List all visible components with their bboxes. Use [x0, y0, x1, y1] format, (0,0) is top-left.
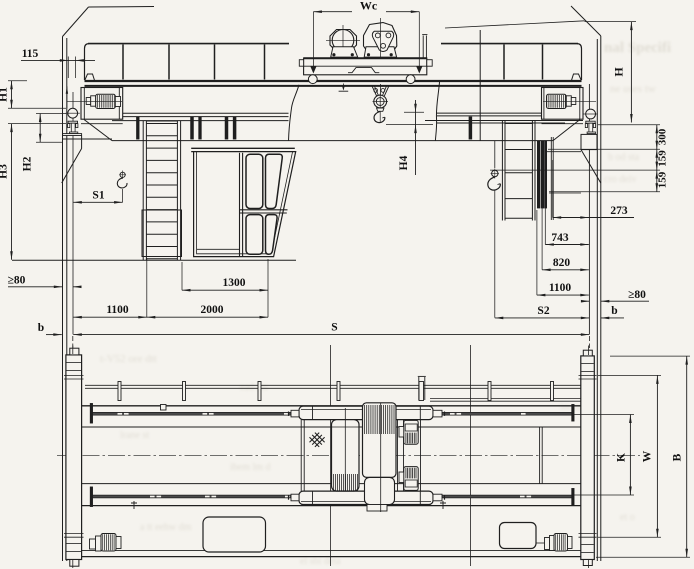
svg-text:ne uses tw: ne uses tw — [610, 83, 656, 95]
svg-text:B: B — [672, 453, 684, 461]
svg-text:S2: S2 — [537, 305, 549, 317]
svg-text:H: H — [612, 67, 626, 77]
svg-text:159: 159 — [657, 171, 669, 188]
svg-text:Wc: Wc — [360, 0, 378, 13]
svg-text:K: K — [616, 453, 628, 462]
svg-text:≥80: ≥80 — [8, 275, 26, 287]
svg-text:cro deiv: cro deiv — [604, 174, 637, 185]
svg-text:H3: H3 — [0, 164, 10, 179]
svg-text:t-V52 ore dtt: t-V52 ore dtt — [100, 353, 157, 365]
svg-text:300: 300 — [657, 128, 669, 145]
svg-text:S: S — [331, 322, 337, 334]
svg-text:820: 820 — [553, 257, 571, 269]
svg-text:nal Specifi: nal Specifi — [604, 40, 671, 56]
svg-text:115: 115 — [22, 48, 39, 60]
svg-text:1300: 1300 — [223, 277, 246, 289]
svg-text:b od sta: b od sta — [608, 152, 640, 163]
svg-text:H2: H2 — [22, 156, 34, 171]
svg-text:b: b — [38, 322, 44, 334]
svg-text:et o: et o — [620, 512, 635, 523]
svg-text:159: 159 — [657, 150, 669, 167]
svg-text:im ra: im ra — [560, 402, 581, 413]
svg-text:2000: 2000 — [201, 304, 224, 316]
svg-text:b: b — [611, 305, 617, 317]
svg-text:H1: H1 — [0, 87, 10, 102]
svg-text:H4: H4 — [398, 155, 410, 170]
svg-text:lrane st: lrane st — [120, 430, 149, 441]
svg-text:1100: 1100 — [106, 304, 129, 316]
svg-text:ibem lm d: ibem lm d — [230, 462, 271, 473]
svg-text:743: 743 — [551, 232, 569, 244]
svg-text:el sbi deta: el sbi deta — [300, 556, 341, 567]
svg-text:1100: 1100 — [549, 282, 572, 294]
svg-text:273: 273 — [610, 205, 628, 217]
svg-text:S1: S1 — [92, 189, 104, 201]
svg-text:W: W — [642, 450, 654, 462]
svg-text:≥80: ≥80 — [628, 289, 646, 301]
svg-text:a tt eehw dm: a tt eehw dm — [140, 522, 192, 533]
svg-text:ead ms: ead ms — [240, 382, 268, 393]
